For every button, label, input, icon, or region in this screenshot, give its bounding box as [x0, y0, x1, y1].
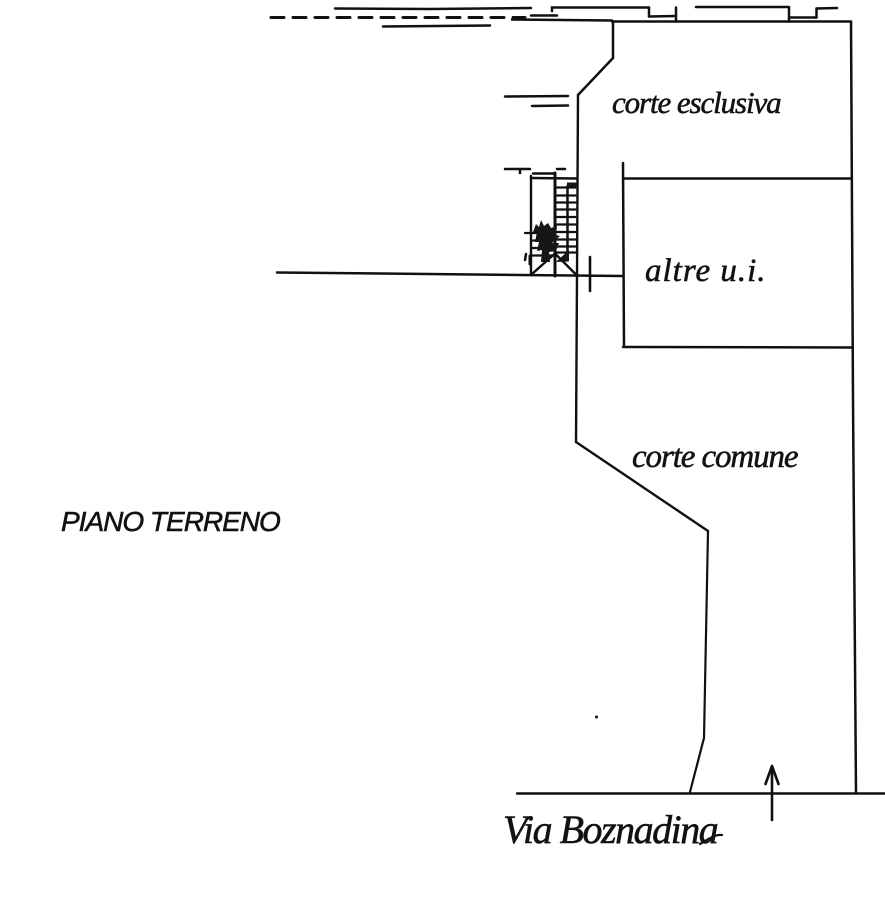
- svg-text:corte comune: corte comune: [632, 439, 798, 475]
- svg-text:Via Boznadina: Via Boznadina: [503, 807, 718, 852]
- svg-text:PIANO TERRENO: PIANO TERRENO: [61, 506, 280, 537]
- svg-text:altre u.i.: altre u.i.: [645, 253, 767, 289]
- svg-text:corte esclusiva: corte esclusiva: [612, 85, 781, 120]
